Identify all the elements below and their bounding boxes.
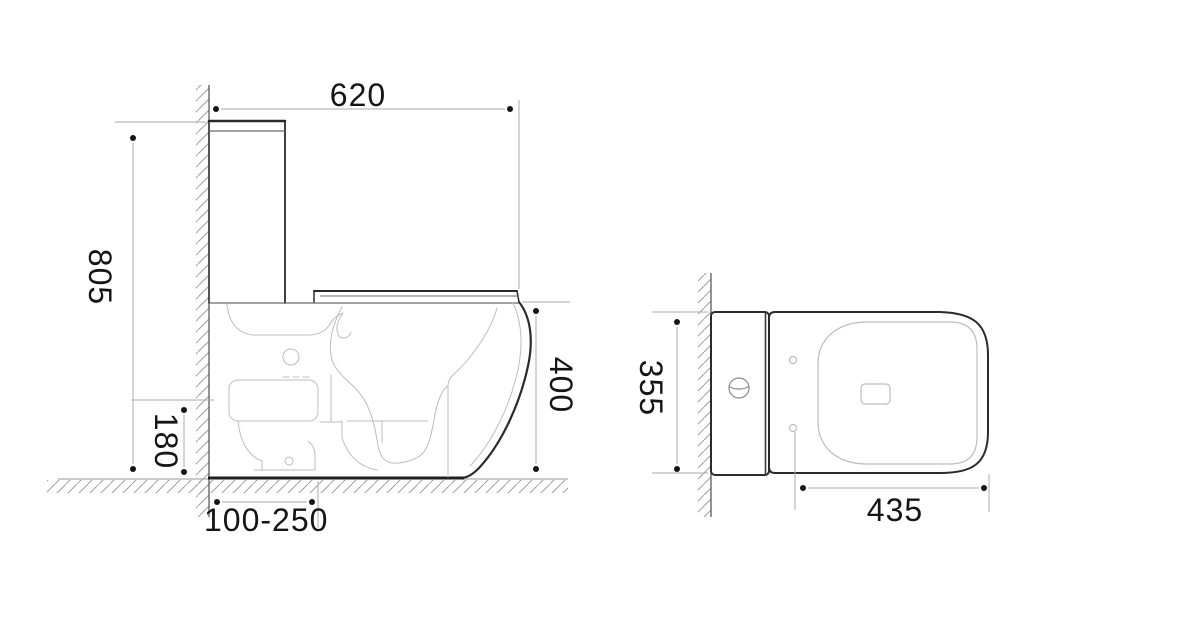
flush-valve-outline — [227, 304, 343, 335]
bowl-front-inner-line — [470, 303, 521, 466]
bowl-cavity-outline — [330, 307, 448, 463]
technical-drawing-canvas: 620 805 180 400 100-250 355 435 — [0, 0, 1182, 626]
dim-400-label: 400 — [544, 325, 578, 445]
flush-knob-chord — [729, 386, 749, 389]
plan-cistern — [711, 312, 769, 475]
plan-hinge-hole-bottom — [790, 425, 797, 432]
dim-dot — [130, 466, 136, 472]
plan-bowl-outline — [769, 312, 988, 473]
outlet-detail — [238, 421, 315, 470]
dim-dot — [213, 106, 219, 112]
plan-hinge-hole-top — [790, 357, 797, 364]
dim-dot — [674, 319, 680, 325]
dim-805-label: 805 — [83, 217, 117, 337]
dim-dot — [981, 485, 987, 491]
valve-pivot-circle — [283, 349, 299, 365]
side-elevation-view — [47, 85, 570, 528]
toilet-dimension-drawing — [0, 0, 1182, 626]
dim-355-label: 355 — [634, 328, 668, 448]
dim-dot — [533, 466, 539, 472]
trap-channel — [320, 421, 377, 470]
dim-620-label: 620 — [298, 78, 418, 112]
outlet-bolt-circle — [285, 457, 293, 465]
side-floor-hatch — [47, 480, 568, 493]
plan-wall-hatch — [698, 273, 711, 517]
plan-button — [861, 384, 890, 404]
dim-dot — [130, 135, 136, 141]
inlet-box — [229, 380, 318, 421]
dim-dot — [507, 106, 513, 112]
plan-seat-opening — [818, 322, 977, 464]
dim-dot — [533, 308, 539, 314]
dim-435-label: 435 — [835, 493, 955, 527]
flush-valve-hook — [337, 313, 351, 338]
dim-dot — [674, 466, 680, 472]
seat-lid-right-edge — [517, 291, 519, 302]
bowl-inner-front-wall — [448, 308, 497, 477]
dim-dot — [800, 485, 806, 491]
dim-roughin-label: 100-250 — [204, 503, 324, 537]
dim-180-label: 180 — [149, 381, 183, 501]
plan-view — [652, 273, 989, 517]
side-wall-hatch — [196, 85, 209, 517]
